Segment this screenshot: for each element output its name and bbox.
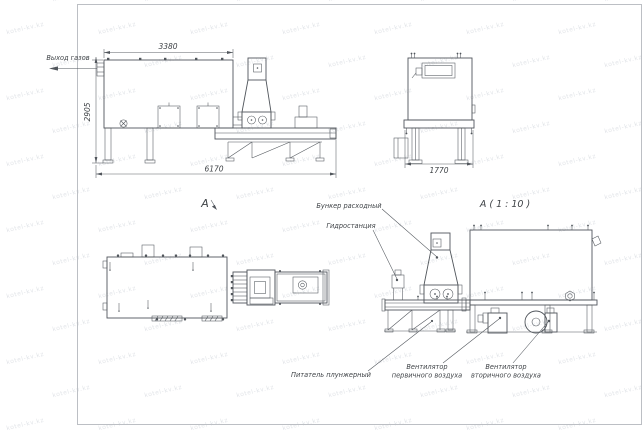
support-truss-side bbox=[226, 142, 324, 161]
tank-detail bbox=[462, 225, 601, 311]
gas-outlet-label: Выход газов bbox=[46, 54, 89, 62]
base-band-end bbox=[404, 120, 474, 128]
feeder-truss-detail bbox=[384, 310, 456, 332]
hatch-strips bbox=[152, 316, 222, 321]
primary-air-fan-label-line1: Вентилятор bbox=[406, 363, 447, 371]
dimension-2905: 2905 bbox=[83, 57, 103, 163]
dim-left-value: 2905 bbox=[83, 102, 92, 121]
inspection-opening bbox=[412, 63, 455, 78]
feed-hopper-label: Бункер расходный bbox=[316, 202, 382, 210]
legs-end bbox=[409, 128, 468, 164]
dimension-6170: 6170 bbox=[96, 140, 336, 178]
gas-flow-arrow-icon bbox=[49, 66, 97, 70]
detail-title: А ( 1 : 10 ) bbox=[479, 199, 530, 210]
boiler-body-plan bbox=[107, 257, 227, 318]
drawing-sheet: kotel-kv.kzkotel-kv.kzkotel-kv.kzkotel-k… bbox=[0, 0, 644, 430]
sheet-border bbox=[78, 5, 642, 425]
hydraulic-station-detail bbox=[392, 270, 404, 300]
primary-air-fan-detail bbox=[478, 308, 507, 333]
side-box-end bbox=[394, 138, 408, 158]
plunger-feeder-label: Питатель плунжерный bbox=[291, 371, 372, 379]
feeder-assembly-plan bbox=[231, 270, 329, 305]
anchor-marks bbox=[109, 262, 212, 312]
technical-drawing-canvas: Выход газов 3380 2905 bbox=[0, 0, 644, 430]
view-arrow-label: А bbox=[200, 197, 209, 210]
feed-hopper-side bbox=[233, 58, 275, 128]
dimension-3380: 3380 bbox=[104, 42, 233, 58]
secondary-air-fan-label-line2: вторичного воздуха bbox=[471, 372, 541, 380]
view-detail: А ( 1 : 10 ) Бункер расходный Гидростанц… bbox=[291, 199, 601, 380]
view-arrow-icon bbox=[211, 200, 217, 210]
boiler-body-end bbox=[408, 58, 472, 120]
view-side-elevation: Выход газов 3380 2905 bbox=[46, 42, 336, 178]
view-end-elevation: 1770 bbox=[394, 53, 475, 175]
boiler-body-side bbox=[97, 58, 233, 163]
view-plan: А bbox=[103, 197, 329, 321]
primary-air-fan-label-line2: первичного воздуха bbox=[392, 372, 462, 380]
feed-hopper-detail bbox=[420, 233, 462, 303]
lifting-hook-icon bbox=[592, 236, 601, 246]
dim-bottom-value: 6170 bbox=[204, 165, 223, 174]
secondary-air-fan-label-line1: Вентилятор bbox=[485, 363, 526, 371]
dim-top-value: 3380 bbox=[158, 42, 177, 51]
hydraulic-station-label: Гидростанция bbox=[326, 222, 375, 230]
hex-bolt-icon bbox=[566, 291, 575, 301]
dim-1770-value: 1770 bbox=[429, 166, 448, 175]
dimension-1770: 1770 bbox=[405, 130, 473, 175]
secondary-air-fan-detail bbox=[525, 308, 557, 333]
